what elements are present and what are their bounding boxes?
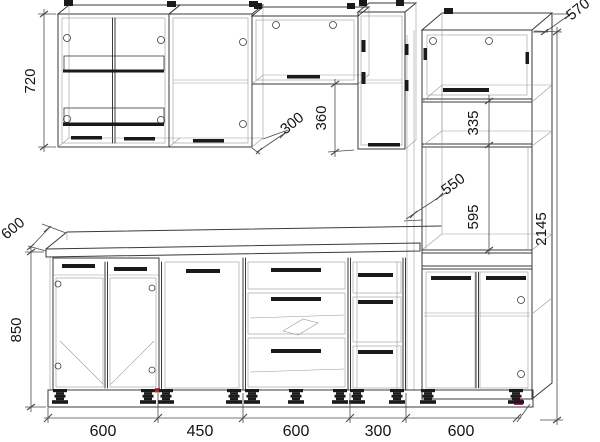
dim-label-tall-depth: 570: [563, 0, 593, 24]
door-handle: [486, 276, 526, 280]
hinge-circle: [518, 371, 525, 378]
door-handle: [186, 269, 220, 273]
drawer-handle: [358, 273, 393, 277]
dim-label-base-height: 850: [8, 317, 25, 342]
hinge-circle: [64, 35, 71, 42]
wall-cabinet-dish-rack: [58, 0, 263, 147]
hinge-circle: [240, 39, 247, 46]
dim-wall-cabinet-depth: 300: [252, 109, 307, 154]
dim-label-width-4: 300: [365, 423, 392, 440]
dim-tall-unit-depth: 570: [533, 0, 593, 35]
hinge-circle: [486, 38, 493, 45]
hinge-circle: [430, 38, 437, 45]
dim-label-wall-depth: 300: [277, 109, 307, 138]
dim-label-total-height: 2145: [533, 212, 550, 245]
hinge-plate: [526, 52, 530, 64]
hinge-plate: [405, 44, 409, 55]
drawer-front: [248, 262, 345, 289]
dim-base-height: 850: [8, 247, 46, 412]
hinge-plate: [362, 40, 366, 52]
door-handle: [431, 276, 471, 280]
door-handle: [71, 136, 102, 140]
technical-drawing-canvas: 720 300 360 570 335 595 55: [0, 0, 600, 442]
wall-bracket: [396, 0, 404, 6]
hinge-circle: [149, 367, 155, 373]
wall-bracket: [254, 3, 262, 9]
door-handle: [193, 139, 224, 143]
drawer-handle: [271, 268, 321, 272]
wall-bracket: [64, 0, 73, 6]
door-swing-line: [111, 341, 154, 384]
dim-label-width-1: 600: [90, 423, 117, 440]
dim-label-niche-height: 595: [465, 204, 482, 229]
door-handle: [124, 137, 155, 141]
column-base-doors: [424, 272, 552, 388]
hinge-circle: [330, 22, 337, 29]
drawer-handle: [271, 297, 321, 301]
appliance-front-450: [155, 258, 239, 393]
drawer-handle: [358, 350, 393, 354]
adjustable-feet: [52, 389, 524, 404]
dim-base-widths: 600 450 600 300 600: [44, 393, 530, 440]
hinge-plate: [362, 72, 366, 84]
dim-label-width-5: 600: [448, 423, 475, 440]
door-handle: [443, 88, 489, 92]
hinge-circle: [273, 22, 280, 29]
wall-bracket: [167, 1, 176, 7]
hinge-plate: [424, 48, 428, 60]
base-drawer-unit-300: [351, 258, 406, 390]
hinge-circle: [149, 285, 155, 291]
dim-label-width-3: 600: [283, 423, 310, 440]
dim-label-worktop-depth: 600: [0, 214, 28, 243]
dish-drying-rack-upper: [63, 56, 164, 73]
dim-label-hood-height: 360: [313, 105, 330, 130]
dim-oven-niche-depth: 550: [404, 170, 468, 221]
column-flip-door: [424, 35, 530, 95]
dim-label-wall-height: 720: [22, 68, 39, 93]
drawer-handle: [358, 300, 393, 304]
door-handle: [114, 267, 147, 271]
dim-hood-cabinet-height: 360: [313, 79, 354, 157]
dim-wall-cabinet-height: 720: [22, 9, 56, 152]
worktop: [46, 226, 441, 257]
door-handle: [287, 75, 320, 79]
wall-bracket: [444, 8, 453, 14]
door-swing-line: [60, 341, 103, 384]
dish-drying-rack-lower: [63, 108, 164, 126]
hinge-circle: [240, 121, 247, 128]
base-drawer-unit-600: [243, 258, 348, 390]
hinge-circle: [518, 297, 525, 304]
drawer-front: [353, 262, 401, 293]
hinge-circle: [64, 116, 71, 123]
wall-bracket: [347, 3, 355, 9]
dim-label-upper-section: 335: [465, 110, 482, 135]
door-handle: [62, 264, 95, 268]
door-handle: [368, 143, 400, 147]
hinge-circle: [158, 37, 165, 44]
drawer-front: [248, 338, 345, 387]
hinge-circle: [158, 117, 165, 124]
dim-worktop-depth: 600: [0, 214, 66, 251]
base-cabinet-double-door: [50, 257, 159, 390]
dim-total-height: 2145: [533, 27, 563, 425]
dim-label-width-2: 450: [187, 423, 214, 440]
kitchen-drawing: 720 300 360 570 335 595 55: [0, 0, 600, 442]
hinge-plate: [405, 80, 409, 91]
wall-cabinet-single-door: [169, 1, 263, 147]
drawer-handle: [271, 349, 321, 353]
cutlery-tray: [283, 319, 318, 335]
dim-column-sections: 335 595: [465, 95, 493, 255]
wall-bracket: [359, 0, 367, 6]
hood-wall-cabinet: [252, 3, 369, 84]
